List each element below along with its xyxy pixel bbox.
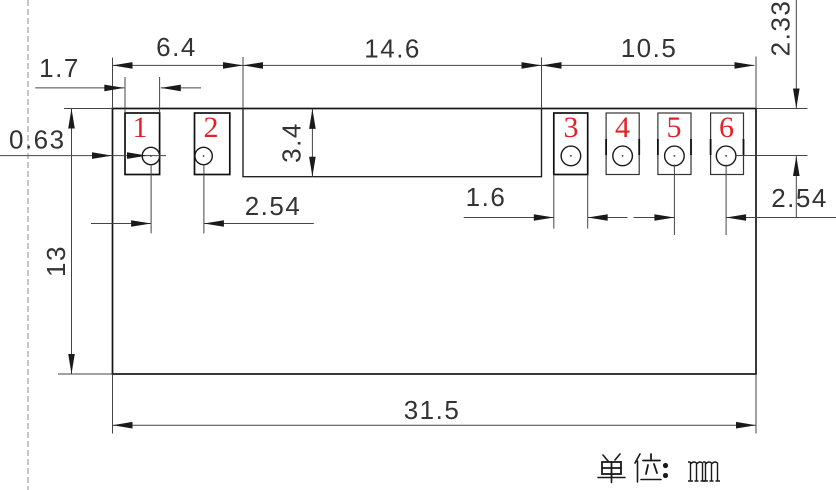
svg-text:3: 3 bbox=[564, 111, 579, 144]
svg-text:2.33: 2.33 bbox=[765, 0, 795, 56]
svg-text:3.4: 3.4 bbox=[276, 122, 306, 163]
svg-text:14.6: 14.6 bbox=[364, 34, 421, 64]
svg-text:1.6: 1.6 bbox=[466, 182, 507, 212]
svg-text:6.4: 6.4 bbox=[156, 32, 197, 62]
svg-text:6: 6 bbox=[719, 111, 734, 144]
svg-text:0.63: 0.63 bbox=[9, 125, 66, 155]
svg-text:1.7: 1.7 bbox=[39, 53, 80, 83]
svg-text:2.54: 2.54 bbox=[245, 191, 302, 221]
svg-text:10.5: 10.5 bbox=[621, 33, 678, 63]
svg-text:5: 5 bbox=[667, 111, 682, 144]
svg-text:2: 2 bbox=[204, 111, 219, 144]
svg-text:4: 4 bbox=[615, 111, 630, 144]
svg-text:31.5: 31.5 bbox=[404, 395, 461, 425]
svg-text:2.54: 2.54 bbox=[771, 183, 828, 213]
svg-text:1: 1 bbox=[133, 111, 148, 144]
svg-text:13: 13 bbox=[41, 245, 71, 277]
